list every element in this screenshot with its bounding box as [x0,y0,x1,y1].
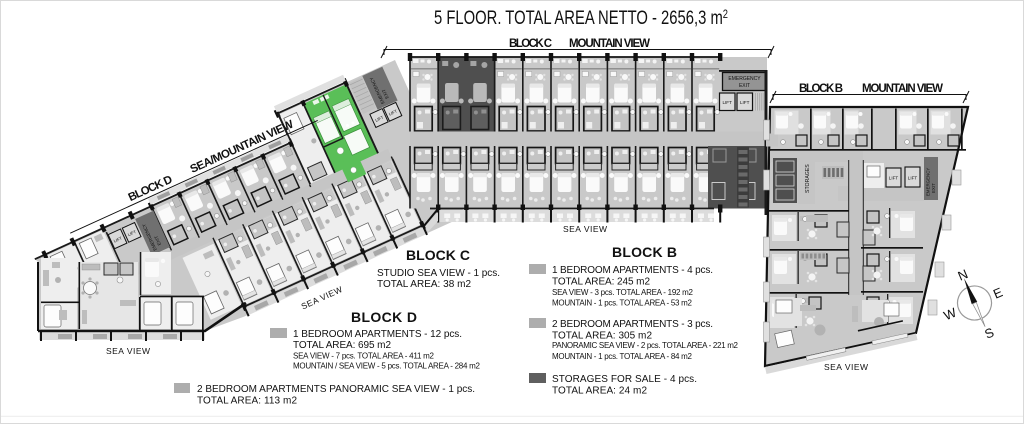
svg-text:BLOCK B: BLOCK B [799,83,843,95]
svg-text:MOUNTAIN VIEW: MOUNTAIN VIEW [569,38,650,50]
svg-text:LIFT: LIFT [889,176,899,181]
svg-text:5 FLOOR. TOTAL AREA NETTO - 26: 5 FLOOR. TOTAL AREA NETTO - 2656,3 m2 [434,7,728,29]
svg-text:MOUNTAIN - 1 pcs. TOTAL AREA -: MOUNTAIN - 1 pcs. TOTAL AREA - 53 m2 [552,299,693,308]
svg-text:SEA VIEW - 3 pcs. TOTAL AREA -: SEA VIEW - 3 pcs. TOTAL AREA - 192 m2 [552,288,694,297]
svg-text:STUDIO SEA VIEW - 1 pcs.: STUDIO SEA VIEW - 1 pcs. [377,268,500,279]
svg-text:STORAGES FOR SALE - 4 pcs.: STORAGES FOR SALE - 4 pcs. [552,374,697,385]
svg-text:LIFT: LIFT [722,100,732,105]
svg-text:MOUNTAIN - 1 pcs. TOTAL AREA -: MOUNTAIN - 1 pcs. TOTAL AREA - 84 m2 [552,352,693,361]
svg-text:1 BEDROOM APARTMENTS - 12 pcs.: 1 BEDROOM APARTMENTS - 12 pcs. [293,329,462,340]
svg-text:SEA VIEW - 7 pcs. TOTAL AREA -: SEA VIEW - 7 pcs. TOTAL AREA - 411 m2 [293,352,435,361]
svg-text:LIFT: LIFT [908,176,918,181]
svg-text:1 BEDROOM APARTMENTS - 4 pcs.: 1 BEDROOM APARTMENTS - 4 pcs. [552,265,713,276]
svg-text:PANORAMIC SEA VIEW - 2 pcs. TO: PANORAMIC SEA VIEW - 2 pcs. TOTAL AREA -… [552,341,739,350]
svg-text:BLOCK C: BLOCK C [509,38,552,50]
svg-text:2 BEDROOM APARTMENTS PANORAMIC: 2 BEDROOM APARTMENTS PANORAMIC SEA VIEW … [197,384,475,395]
svg-text:EMERGENCY: EMERGENCY [728,76,761,82]
svg-text:SEA VIEW: SEA VIEW [563,224,607,234]
svg-text:TOTAL AREA: 38 m2: TOTAL AREA: 38 m2 [377,279,471,290]
svg-text:TOTAL AREA: 695 m2: TOTAL AREA: 695 m2 [293,340,391,351]
svg-text:TOTAL AREA: 245 m2: TOTAL AREA: 245 m2 [552,277,650,288]
svg-text:MOUNTAIN VIEW: MOUNTAIN VIEW [862,83,943,95]
svg-text:STORAGES: STORAGES [805,164,811,193]
svg-text:TOTAL AREA: 113 m2: TOTAL AREA: 113 m2 [197,396,297,407]
svg-text:BLOCK B: BLOCK B [612,244,677,260]
svg-text:EXIT: EXIT [931,183,936,193]
svg-text:EXIT: EXIT [739,83,750,89]
svg-text:TOTAL AREA: 24 m2: TOTAL AREA: 24 m2 [552,386,647,397]
svg-text:BLOCK C: BLOCK C [406,247,470,263]
svg-text:EMERGENCY: EMERGENCY [926,168,931,196]
svg-text:LIFT: LIFT [740,100,750,105]
svg-text:SEA VIEW: SEA VIEW [106,346,150,356]
svg-text:TOTAL AREA: 305 m2: TOTAL AREA: 305 m2 [552,331,652,342]
svg-text:MOUNTAIN / SEA VIEW - 5 pcs. T: MOUNTAIN / SEA VIEW - 5 pcs. TOTAL AREA … [293,362,481,371]
svg-text:SEA VIEW: SEA VIEW [824,362,868,372]
svg-text:BLOCK D: BLOCK D [351,309,417,325]
svg-text:2 BEDROOM APARTMENTS - 3 pcs.: 2 BEDROOM APARTMENTS - 3 pcs. [552,319,713,330]
